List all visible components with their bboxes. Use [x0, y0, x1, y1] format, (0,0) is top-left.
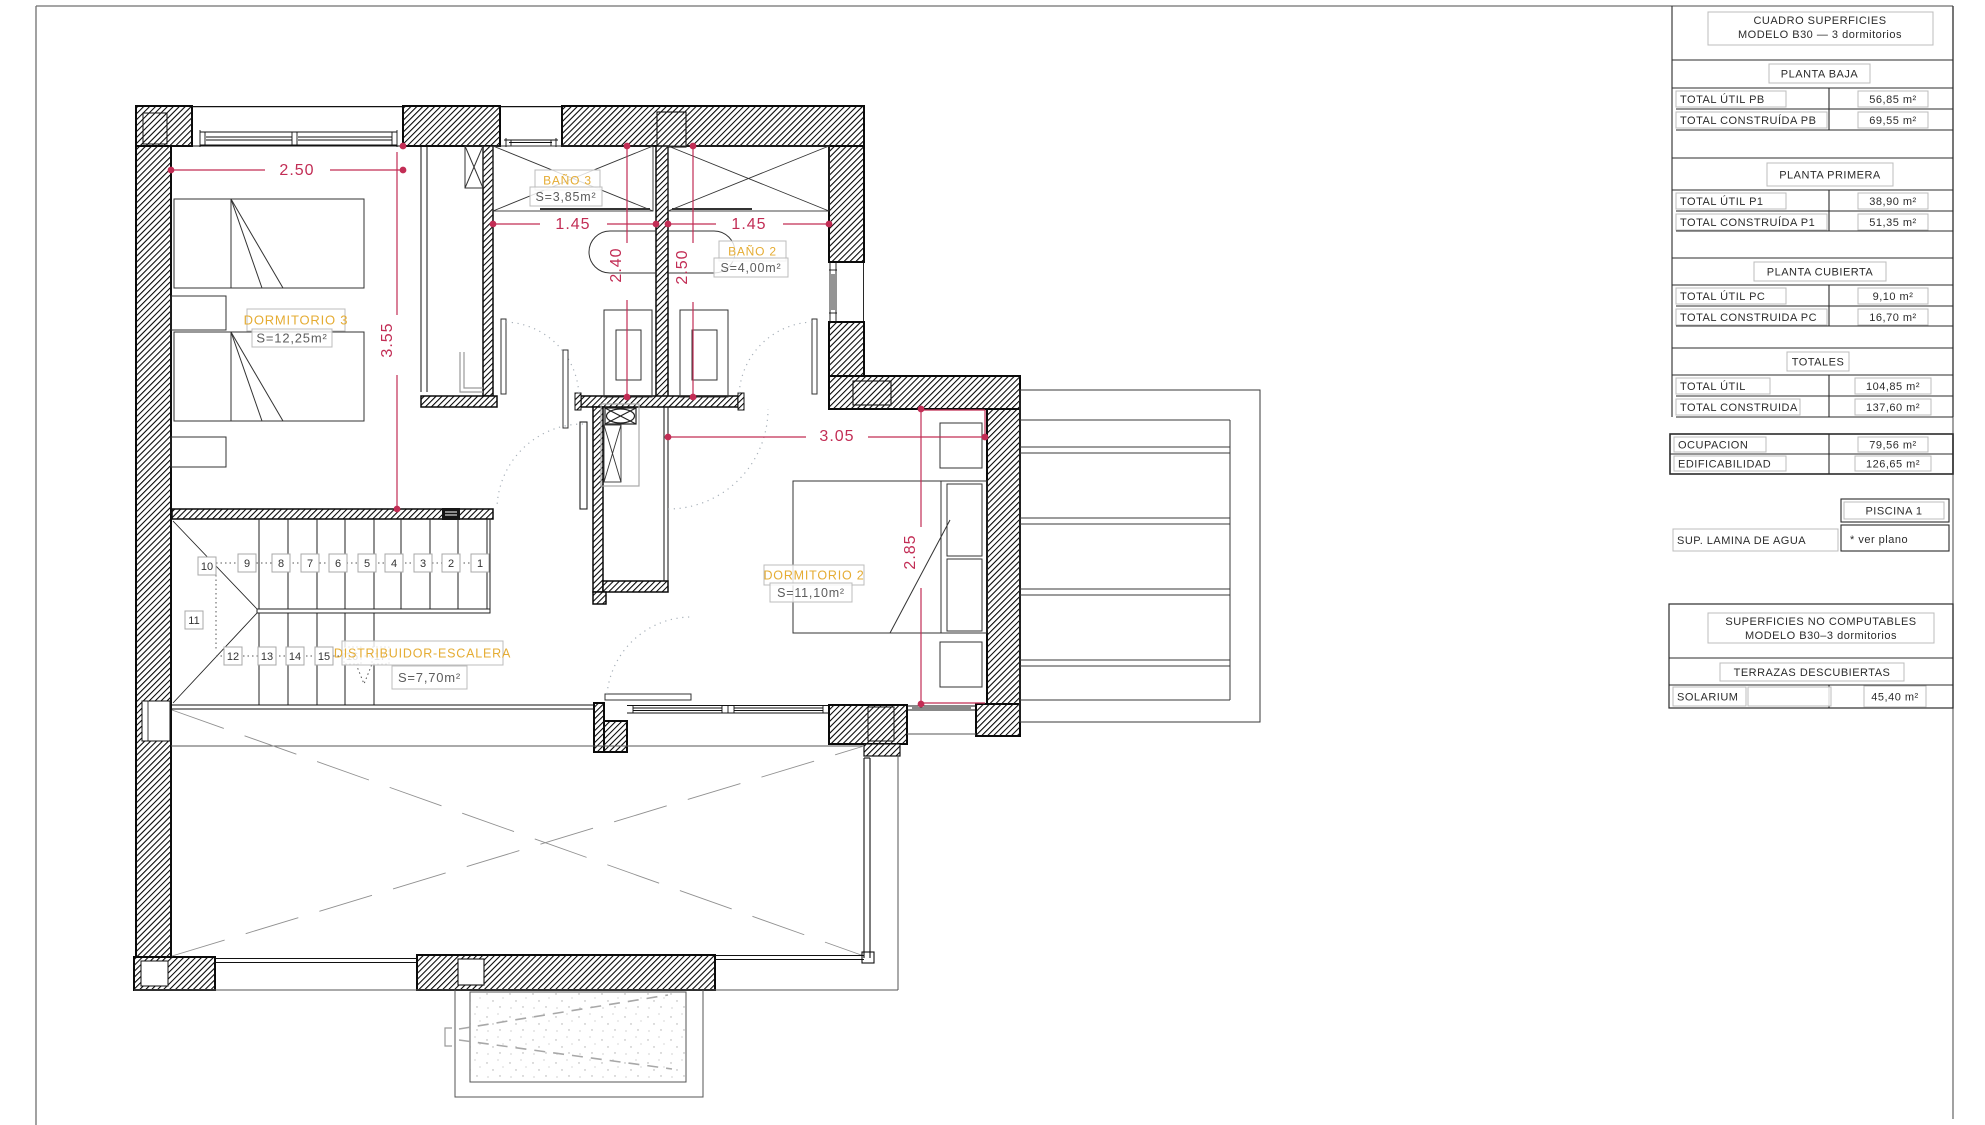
- svg-text:2.50: 2.50: [674, 249, 691, 284]
- svg-text:12: 12: [227, 651, 239, 663]
- svg-text:PISCINA 1: PISCINA 1: [1865, 506, 1922, 518]
- svg-text:DORMITORIO 3: DORMITORIO 3: [244, 313, 349, 328]
- svg-text:TOTAL CONSTRUIDA: TOTAL CONSTRUIDA: [1680, 402, 1798, 414]
- svg-text:TOTAL ÚTIL PB: TOTAL ÚTIL PB: [1680, 93, 1765, 106]
- svg-text:9: 9: [244, 558, 250, 570]
- svg-text:51,35 m²: 51,35 m²: [1869, 217, 1916, 229]
- svg-text:69,55 m²: 69,55 m²: [1869, 115, 1916, 127]
- svg-text:13: 13: [261, 651, 273, 663]
- svg-text:1.45: 1.45: [731, 216, 766, 233]
- svg-text:S=3,85m²: S=3,85m²: [536, 190, 597, 204]
- svg-text:TOTAL ÚTIL PC: TOTAL ÚTIL PC: [1680, 290, 1765, 303]
- svg-text:126,65 m²: 126,65 m²: [1866, 459, 1920, 471]
- svg-text:TOTAL CONSTRUÍDA P1: TOTAL CONSTRUÍDA P1: [1680, 216, 1815, 229]
- svg-text:45,40 m²: 45,40 m²: [1871, 692, 1918, 704]
- svg-text:S=7,70m²: S=7,70m²: [398, 670, 461, 685]
- svg-text:38,90 m²: 38,90 m²: [1869, 196, 1916, 208]
- svg-text:S=4,00m²: S=4,00m²: [721, 261, 782, 275]
- svg-text:TOTAL ÚTIL: TOTAL ÚTIL: [1680, 380, 1746, 393]
- svg-text:3.05: 3.05: [819, 428, 854, 445]
- svg-text:EDIFICABILIDAD: EDIFICABILIDAD: [1678, 459, 1771, 471]
- svg-text:6: 6: [335, 558, 341, 570]
- svg-text:MODELO B30–3 dormitorios: MODELO B30–3 dormitorios: [1745, 630, 1897, 642]
- svg-text:SUP. LAMINA DE AGUA: SUP. LAMINA DE AGUA: [1677, 535, 1806, 547]
- svg-text:11: 11: [188, 615, 199, 627]
- svg-text:7: 7: [307, 558, 313, 570]
- svg-text:56,85 m²: 56,85 m²: [1869, 94, 1916, 106]
- svg-text:3: 3: [420, 558, 426, 570]
- svg-text:16,70 m²: 16,70 m²: [1869, 312, 1916, 324]
- svg-text:104,85 m²: 104,85 m²: [1866, 381, 1920, 393]
- svg-text:8: 8: [278, 558, 284, 570]
- svg-text:TOTAL CONSTRUIDA PC: TOTAL CONSTRUIDA PC: [1680, 312, 1817, 324]
- svg-text:4: 4: [391, 558, 397, 570]
- svg-text:SUPERFICIES NO COMPUTABLES: SUPERFICIES NO COMPUTABLES: [1725, 616, 1916, 628]
- svg-text:OCUPACION: OCUPACION: [1678, 440, 1748, 452]
- svg-text:TOTALES: TOTALES: [1792, 357, 1845, 369]
- svg-text:* ver plano: * ver plano: [1850, 534, 1908, 546]
- svg-text:SOLARIUM: SOLARIUM: [1677, 692, 1738, 704]
- svg-text:2.40: 2.40: [608, 247, 625, 282]
- svg-text:137,60 m²: 137,60 m²: [1866, 402, 1920, 414]
- svg-text:79,56 m²: 79,56 m²: [1869, 440, 1916, 452]
- svg-text:PLANTA PRIMERA: PLANTA PRIMERA: [1779, 170, 1881, 182]
- svg-text:TERRAZAS DESCUBIERTAS: TERRAZAS DESCUBIERTAS: [1734, 667, 1891, 679]
- svg-text:1.45: 1.45: [555, 216, 590, 233]
- svg-text:9,10 m²: 9,10 m²: [1873, 291, 1914, 303]
- svg-text:PLANTA CUBIERTA: PLANTA CUBIERTA: [1767, 267, 1874, 279]
- svg-text:BAÑO 2: BAÑO 2: [728, 245, 777, 259]
- svg-text:DISTRIBUIDOR-ESCALERA: DISTRIBUIDOR-ESCALERA: [334, 647, 511, 661]
- svg-text:2.85: 2.85: [902, 534, 919, 569]
- svg-text:2: 2: [448, 558, 454, 570]
- svg-text:S=11,10m²: S=11,10m²: [777, 586, 845, 600]
- svg-text:TOTAL CONSTRUÍDA PB: TOTAL CONSTRUÍDA PB: [1680, 114, 1816, 127]
- svg-text:1: 1: [477, 558, 483, 570]
- svg-text:10: 10: [201, 561, 213, 573]
- svg-text:CUADRO SUPERFICIES: CUADRO SUPERFICIES: [1753, 15, 1886, 27]
- svg-text:PLANTA BAJA: PLANTA BAJA: [1781, 69, 1859, 81]
- svg-text:MODELO B30 — 3 dormitorios: MODELO B30 — 3 dormitorios: [1738, 29, 1902, 41]
- svg-text:S=12,25m²: S=12,25m²: [256, 331, 327, 346]
- svg-text:2.50: 2.50: [279, 162, 314, 179]
- svg-text:BAÑO 3: BAÑO 3: [543, 174, 592, 188]
- svg-text:3.55: 3.55: [379, 322, 396, 357]
- svg-text:TOTAL ÚTIL P1: TOTAL ÚTIL P1: [1680, 195, 1764, 208]
- svg-text:14: 14: [289, 651, 301, 663]
- svg-text:DORMITORIO 2: DORMITORIO 2: [763, 569, 864, 583]
- svg-text:5: 5: [364, 558, 370, 570]
- svg-text:15: 15: [318, 651, 330, 663]
